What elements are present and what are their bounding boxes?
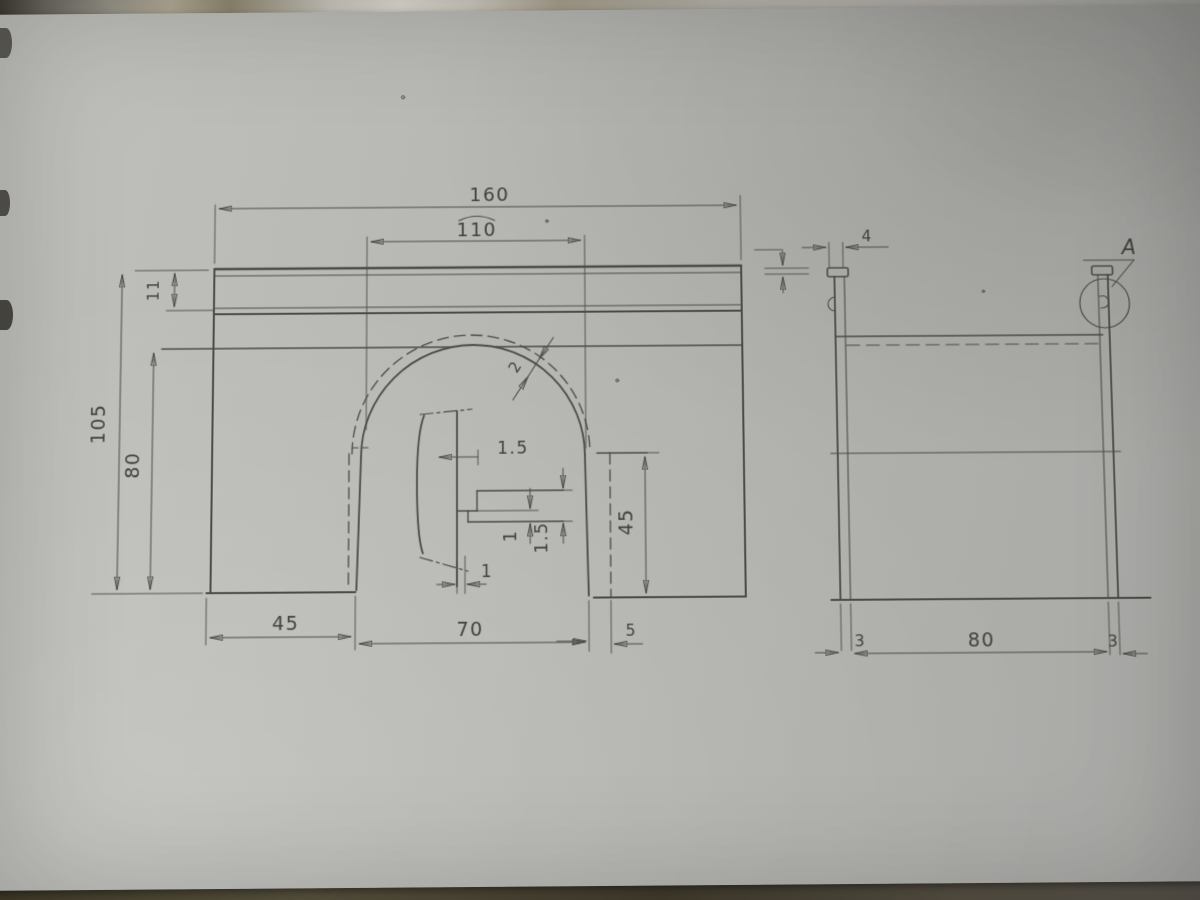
- dim-overall-width: 160: [469, 185, 509, 206]
- dim-step-right-b: 1: [500, 529, 520, 542]
- dim-cap-width: 4: [861, 227, 873, 245]
- dim-inner-width: 80: [968, 630, 996, 652]
- dim-edge-offset: 5: [626, 621, 638, 640]
- dim-body-height: 80: [123, 452, 145, 479]
- side-view-outline: [825, 266, 1150, 600]
- dim-step-top: 1.5: [497, 437, 529, 457]
- detail-a-label: A: [1119, 235, 1137, 259]
- dim-arch-width: 70: [456, 619, 483, 641]
- detail-a-hook: [1099, 296, 1108, 308]
- dim-total-height: 105: [88, 403, 110, 444]
- engineering-drawing: 1.5 1.5 1 1 2: [0, 8, 1200, 900]
- dim-wall-right: 3: [1108, 632, 1120, 651]
- dim-step-right-a: 1.5: [531, 522, 551, 554]
- front-view-dims: 160 110 105 80 11: [84, 184, 746, 657]
- dim-shoulder-height: 45: [616, 508, 638, 535]
- front-view: 1.5 1.5 1 1 2: [84, 184, 746, 657]
- dim-arc-gap: 2: [505, 357, 526, 376]
- side-view: A 4: [754, 226, 1152, 658]
- dim-wall-left: 3: [855, 632, 867, 651]
- dim-arc-length: 110: [457, 220, 497, 241]
- dim-left-leg: 45: [272, 614, 300, 636]
- front-view-outline: [158, 266, 746, 601]
- photo-of-technical-drawing: 1.5 1.5 1 1 2: [0, 0, 1200, 900]
- front-view-arch: [348, 334, 648, 598]
- detail-a-circle: [1079, 279, 1130, 328]
- side-view-dims: 4 3 80 3: [754, 226, 1147, 658]
- dim-step-bottom: 1: [481, 561, 493, 581]
- dim-top-band: 11: [144, 279, 162, 301]
- drawing-sheet: 1.5 1.5 1 1 2: [0, 8, 1200, 900]
